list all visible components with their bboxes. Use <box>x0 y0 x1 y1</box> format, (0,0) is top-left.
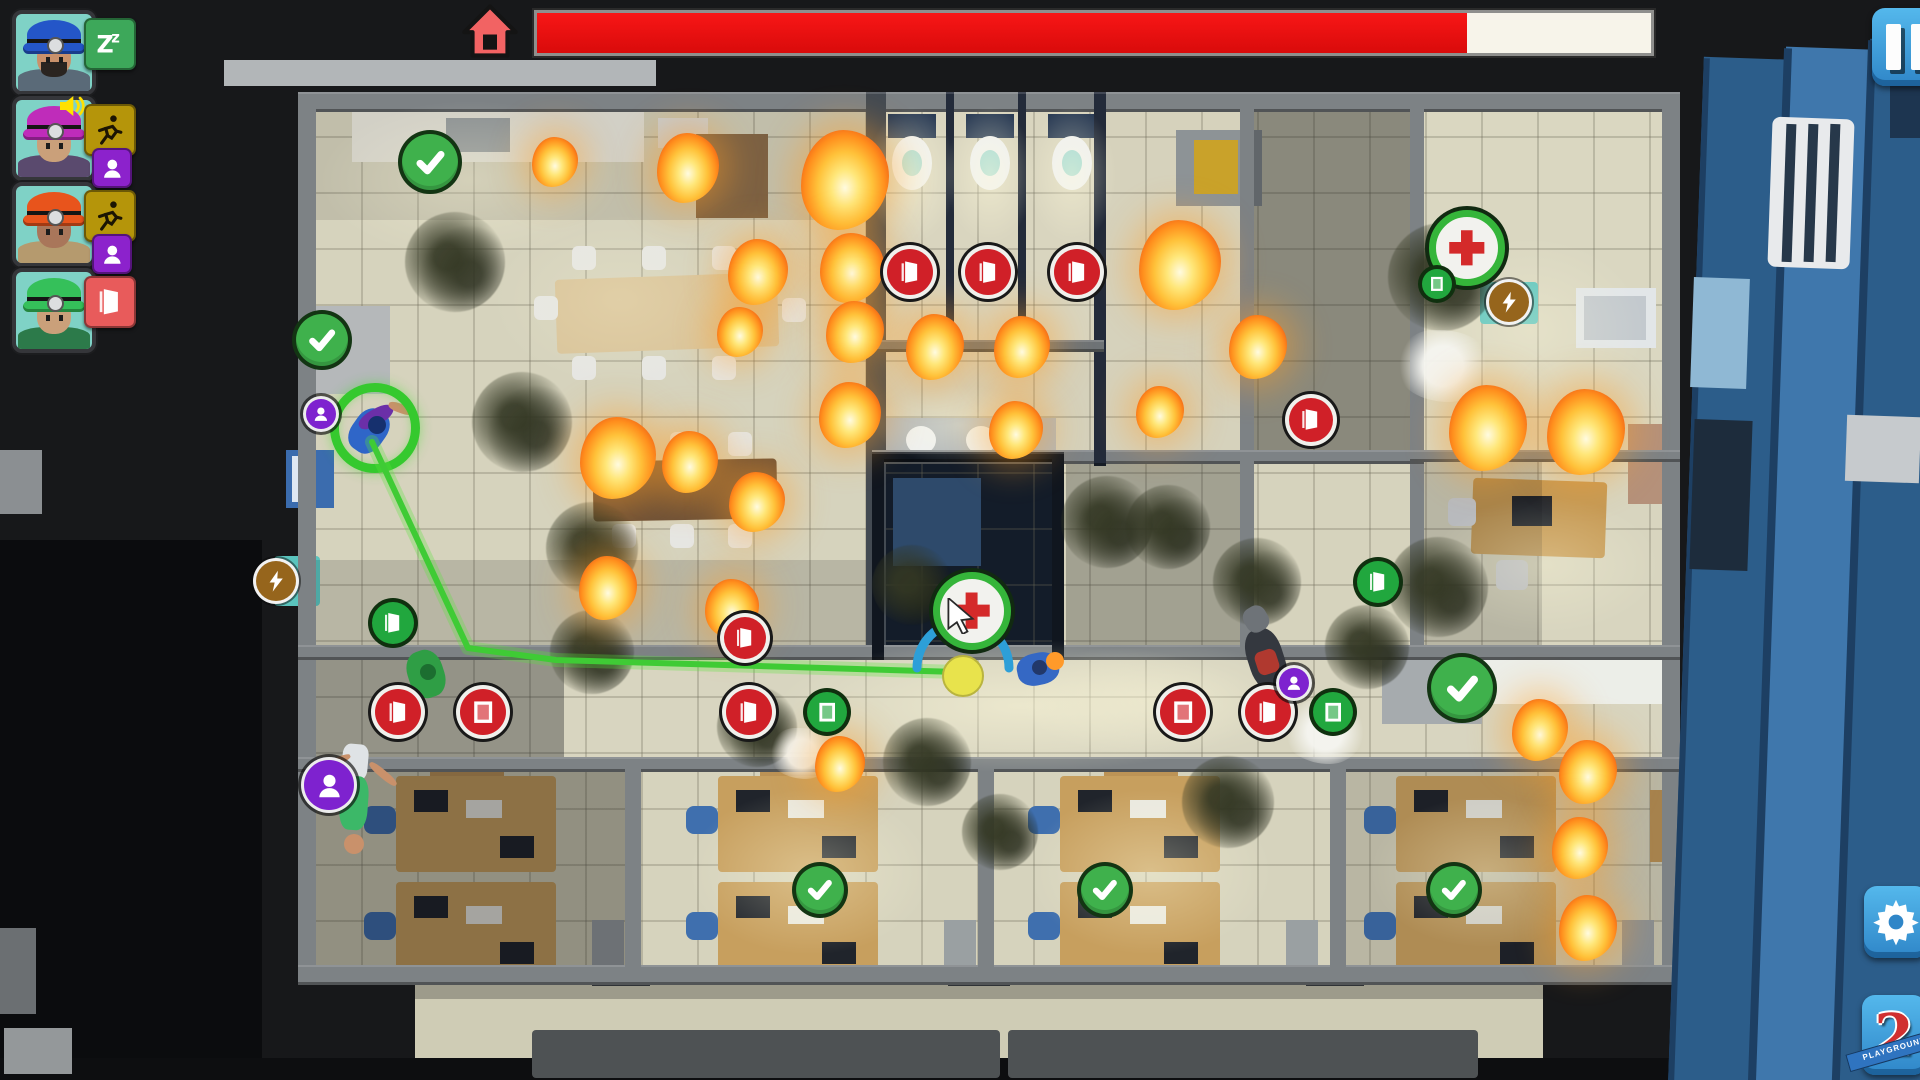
medic-icon[interactable] <box>933 572 1011 650</box>
furniture <box>1448 498 1476 526</box>
playground-logo-button[interactable]: 2 PLAYGROUND <box>1862 995 1920 1075</box>
furniture <box>1164 942 1198 964</box>
civilian-icon[interactable] <box>306 399 336 429</box>
home-icon <box>462 2 518 60</box>
window-closed-icon[interactable] <box>1160 689 1206 735</box>
furniture <box>1164 836 1198 858</box>
civilian-icon[interactable] <box>304 760 354 810</box>
wall <box>1052 452 1064 660</box>
furniture <box>572 356 596 380</box>
pause-icon <box>1886 24 1901 70</box>
wall <box>1410 450 1680 462</box>
smoke-patch <box>405 212 505 312</box>
electric-icon[interactable] <box>256 561 296 601</box>
room-floor <box>0 540 262 1080</box>
building-map[interactable] <box>0 0 1920 1080</box>
character <box>420 664 436 680</box>
check-icon[interactable] <box>1081 866 1129 914</box>
smoke-patch <box>883 718 971 806</box>
status-sleep-icon: Zz <box>84 18 136 70</box>
furniture <box>534 296 558 320</box>
character <box>1032 660 1047 675</box>
door-closed-icon[interactable] <box>1054 249 1100 295</box>
furniture <box>736 790 770 812</box>
furniture <box>1496 560 1528 590</box>
furniture <box>980 150 1000 176</box>
furniture <box>944 920 976 970</box>
exterior-wall <box>1890 78 1920 138</box>
wall <box>298 92 1680 112</box>
status-civilian-icon <box>92 234 132 274</box>
window-open-icon[interactable] <box>1313 692 1353 732</box>
furniture <box>500 836 534 858</box>
gear-icon <box>1870 896 1920 948</box>
furniture <box>1194 140 1238 194</box>
furniture <box>1062 150 1082 176</box>
furniture <box>642 356 666 380</box>
civilian-icon[interactable] <box>1279 668 1309 698</box>
furniture <box>782 298 806 322</box>
headlamp-icon <box>47 123 64 140</box>
furniture <box>224 60 656 86</box>
exterior-wall <box>1845 415 1920 484</box>
furniture <box>686 806 718 834</box>
furniture <box>466 800 502 818</box>
wall <box>872 452 884 660</box>
furniture <box>1364 806 1396 834</box>
check-icon[interactable] <box>296 314 348 366</box>
exterior-wall <box>1689 419 1752 571</box>
character <box>1046 652 1064 670</box>
furniture <box>1512 496 1552 526</box>
smoke-patch <box>1182 756 1274 848</box>
furniture <box>466 906 502 924</box>
wall <box>298 645 1680 660</box>
furniture <box>712 356 736 380</box>
smoke-patch <box>1126 485 1210 569</box>
furniture <box>1466 800 1502 818</box>
furniture <box>1078 790 1112 812</box>
svg-text:z: z <box>111 30 120 47</box>
headlamp-icon <box>47 209 64 226</box>
furniture <box>1584 296 1646 340</box>
door-closed-icon[interactable] <box>1245 689 1291 735</box>
door-closed-icon[interactable] <box>375 689 421 735</box>
wall <box>978 757 994 985</box>
headlamp-icon <box>47 37 64 54</box>
furniture <box>364 912 396 940</box>
furniture <box>822 942 856 964</box>
furniture <box>1048 114 1096 138</box>
status-civilian-icon <box>92 148 132 188</box>
furniture <box>572 246 596 270</box>
smoke-patch <box>1325 605 1409 689</box>
wall <box>625 757 641 985</box>
check-icon[interactable] <box>1431 657 1493 719</box>
window-open-icon[interactable] <box>1422 269 1452 299</box>
furniture <box>414 896 448 918</box>
check-icon[interactable] <box>796 866 844 914</box>
wall <box>1240 92 1254 464</box>
electric-icon[interactable] <box>1489 282 1529 322</box>
furniture <box>1628 424 1664 504</box>
furniture <box>1286 920 1318 970</box>
wall <box>1330 757 1346 985</box>
door-closed-icon[interactable] <box>726 689 772 735</box>
crew-sidebar: Zz <box>0 0 150 380</box>
furniture <box>902 150 922 176</box>
selected-unit-ring <box>330 383 420 473</box>
furniture <box>4 1028 72 1074</box>
furniture <box>1466 906 1502 924</box>
furniture <box>0 928 36 1014</box>
furniture <box>686 912 718 940</box>
wall <box>946 92 954 352</box>
furniture <box>1414 790 1448 812</box>
door-closed-icon[interactable] <box>1289 398 1333 442</box>
smoke-patch <box>550 610 634 694</box>
furniture <box>642 246 666 270</box>
furniture <box>1500 836 1534 858</box>
headlamp-icon <box>47 295 64 312</box>
check-icon[interactable] <box>402 134 458 190</box>
character <box>344 834 364 854</box>
exterior-wall <box>1690 277 1750 389</box>
objective-bar-fill <box>537 13 1467 53</box>
furniture <box>670 524 694 548</box>
door-closed-icon[interactable] <box>965 249 1011 295</box>
door-open-icon[interactable] <box>1357 561 1399 603</box>
wall <box>298 92 316 985</box>
furniture <box>500 942 534 964</box>
window-open-icon[interactable] <box>807 692 847 732</box>
smoke-patch <box>962 794 1038 870</box>
settings-button[interactable] <box>1864 886 1920 958</box>
furniture <box>1130 906 1166 924</box>
status-exit-icon <box>84 276 136 328</box>
pause-button[interactable] <box>1872 8 1920 86</box>
door-open-icon[interactable] <box>372 602 414 644</box>
objective-progress-bar <box>534 10 1654 56</box>
furniture <box>1500 942 1534 964</box>
window-closed-icon[interactable] <box>460 689 506 735</box>
furniture <box>1008 1030 1478 1078</box>
furniture <box>1028 912 1060 940</box>
furniture <box>592 920 624 970</box>
furniture <box>532 1030 1000 1078</box>
furniture <box>1650 790 1662 862</box>
furniture <box>966 114 1014 138</box>
furniture <box>822 836 856 858</box>
furniture <box>414 790 448 812</box>
furniture <box>0 450 42 514</box>
smoke-patch <box>1388 537 1488 637</box>
wall <box>1018 92 1026 352</box>
furniture <box>1622 920 1654 970</box>
furniture <box>736 896 770 918</box>
furniture <box>788 800 824 818</box>
speaker-icon <box>56 90 88 122</box>
check-icon[interactable] <box>1430 866 1478 914</box>
smoke-patch <box>472 372 572 472</box>
furniture <box>888 114 936 138</box>
game-screen: Zz 2 PLAYGROUND <box>0 0 1920 1080</box>
furniture <box>446 118 510 152</box>
furniture <box>728 432 752 456</box>
door-closed-icon[interactable] <box>724 617 766 659</box>
furniture <box>1364 912 1396 940</box>
furniture <box>364 806 396 834</box>
furniture <box>1130 800 1166 818</box>
door-closed-icon[interactable] <box>887 249 933 295</box>
